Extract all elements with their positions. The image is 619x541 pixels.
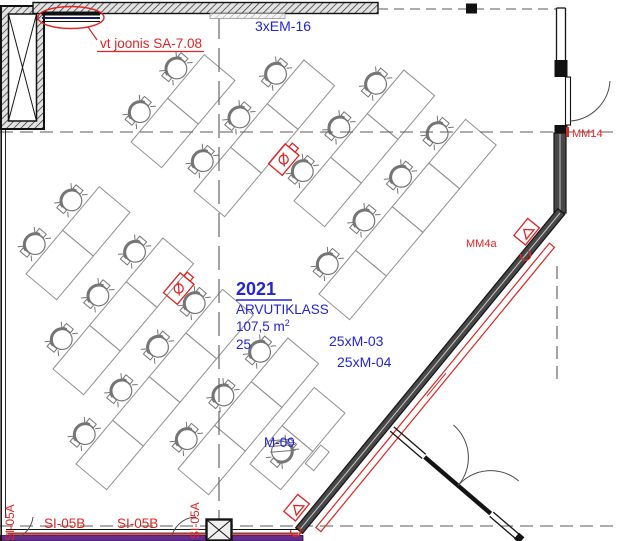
desk-strip (176, 45, 335, 217)
room-area: 107,5 m2 (236, 318, 290, 334)
room-number: 2021 (236, 279, 276, 299)
label-cable-run: 3xEM-16 (255, 18, 311, 34)
desk-strip (35, 223, 194, 395)
room-name: ARVUTIKLASS (236, 302, 329, 317)
note-leader-line (88, 27, 97, 40)
desk-strip (8, 171, 130, 299)
floor-outlet-2 (163, 269, 197, 304)
room-area-value: 107,5 m (236, 319, 285, 334)
desk-area (8, 39, 497, 498)
floor-outlet-1 (268, 140, 302, 175)
room-capacity: 25 (236, 337, 251, 352)
label-teacher-unit: M-09 (264, 435, 295, 450)
label-drawing-note: vt joonis SA-7.08 (100, 36, 202, 51)
label-door-mm14: MM14 (572, 128, 603, 140)
retrofit-red-band (316, 243, 555, 531)
door-leaves (423, 455, 492, 515)
desk-strip (113, 39, 235, 167)
desk-strip (301, 104, 497, 320)
window-sill-right (231, 536, 303, 541)
diagonal-wall (296, 209, 575, 541)
floor-plan-canvas[interactable]: 3xEM-16 2021 ARVUTIKLASS 107,5 m2 25 25x… (0, 0, 619, 541)
floor-plan-svg: 3xEM-16 2021 ARVUTIKLASS 107,5 m2 25 25x… (0, 0, 619, 541)
top-wall (33, 3, 378, 41)
label-monitors-1: 25xM-03 (329, 333, 384, 349)
label-window-si05b-2: SI-05B (117, 516, 158, 531)
door-swing-arc-1 (425, 425, 486, 486)
label-window-si05a-left: SI-05A (3, 504, 17, 541)
label-device-mm4a: MM4a (466, 238, 497, 250)
window-sill-left (0, 536, 207, 541)
label-window-si05b-1: SI-05B (44, 516, 85, 531)
right-wall (554, 8, 610, 213)
window-wall-bottom (0, 129, 303, 541)
room-area-sup: 2 (285, 318, 290, 328)
mm14-red-tick (566, 127, 569, 137)
beam-detail (42, 12, 100, 22)
label-window-si05a-right: SI-05A (188, 502, 202, 539)
column (207, 520, 232, 541)
door-swing-arc-2 (458, 453, 519, 514)
elevator-shaft (1, 6, 44, 129)
door-mm14 (566, 77, 611, 125)
desk-strip (276, 55, 435, 227)
label-monitors-2: 25xM-04 (337, 354, 392, 370)
top-wall-marker (466, 4, 477, 14)
